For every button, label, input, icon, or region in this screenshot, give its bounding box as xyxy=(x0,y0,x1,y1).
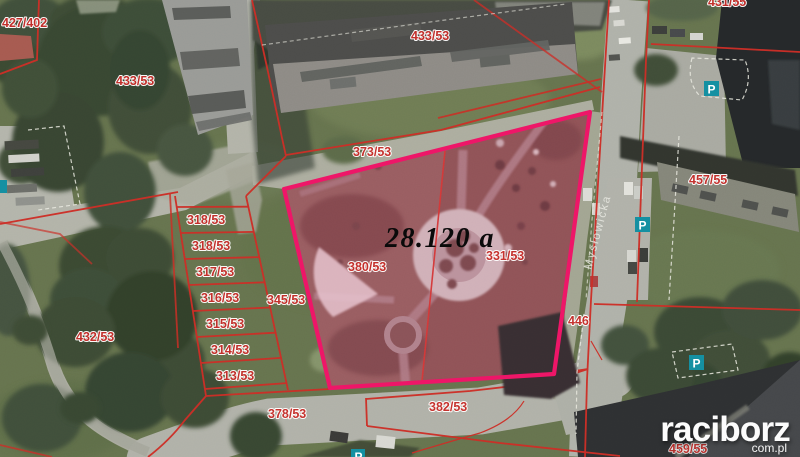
svg-text:382/53: 382/53 xyxy=(429,400,467,414)
svg-text:P: P xyxy=(639,219,647,233)
svg-text:314/53: 314/53 xyxy=(211,343,249,357)
svg-text:28.120 a: 28.120 a xyxy=(384,223,495,254)
svg-text:373/53: 373/53 xyxy=(353,145,391,159)
svg-text:com.pl: com.pl xyxy=(752,441,787,455)
svg-text:P: P xyxy=(355,450,363,457)
svg-text:316/53: 316/53 xyxy=(201,291,239,305)
svg-text:318/53: 318/53 xyxy=(187,213,225,227)
svg-text:P: P xyxy=(693,357,701,371)
svg-text:378/53: 378/53 xyxy=(268,407,306,421)
svg-text:431/55: 431/55 xyxy=(708,0,746,9)
svg-text:432/53: 432/53 xyxy=(76,330,114,344)
svg-text:380/53: 380/53 xyxy=(348,260,386,274)
svg-text:433/53: 433/53 xyxy=(411,29,449,43)
svg-text:345/53: 345/53 xyxy=(267,293,305,307)
svg-text:315/53: 315/53 xyxy=(206,317,244,331)
svg-text:446: 446 xyxy=(568,314,589,328)
svg-text:318/53: 318/53 xyxy=(192,239,230,253)
svg-text:427/402: 427/402 xyxy=(2,16,47,30)
svg-text:313/53: 313/53 xyxy=(216,369,254,383)
svg-text:317/53: 317/53 xyxy=(196,265,234,279)
svg-text:433/53: 433/53 xyxy=(116,74,154,88)
svg-text:457/55: 457/55 xyxy=(689,173,727,187)
svg-text:P: P xyxy=(708,83,716,97)
